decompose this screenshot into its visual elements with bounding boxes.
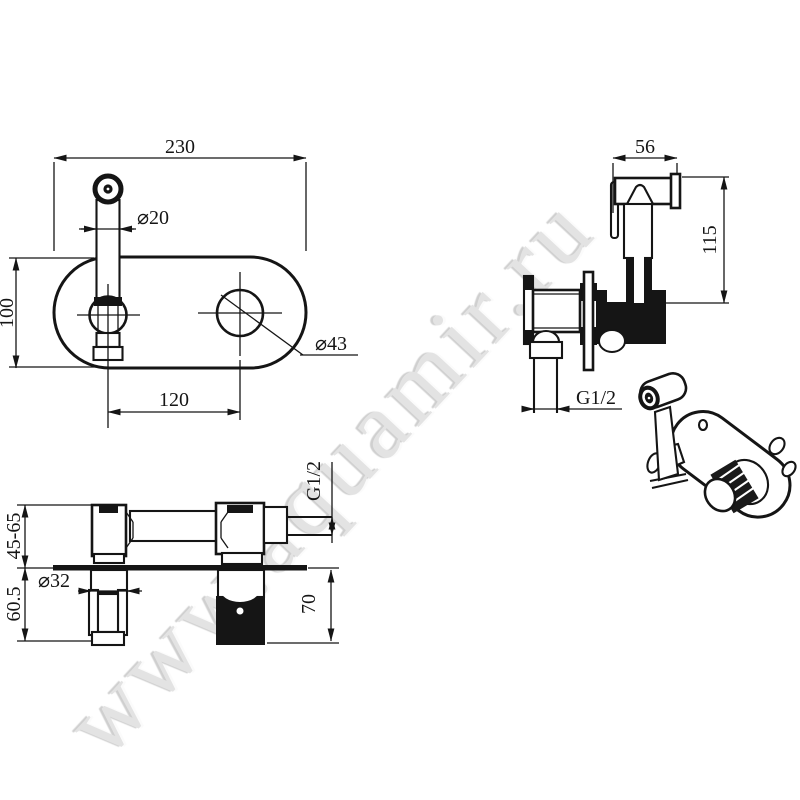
dim-side-width: 56 bbox=[635, 136, 655, 158]
dim-side-thread: G1/2 bbox=[576, 387, 616, 409]
drawing-canvas: www.aquamir.ru bbox=[0, 0, 800, 800]
dim-top-thread: G1/2 bbox=[303, 461, 325, 501]
technical-drawing: 230 ⌀20 100 120 ⌀43 bbox=[0, 0, 800, 800]
view-perspective bbox=[637, 370, 800, 530]
dim-top-body-depth: 70 bbox=[298, 594, 320, 614]
dim-front-center-distance: 120 bbox=[159, 389, 189, 411]
dim-top-pipe-diameter: ⌀32 bbox=[38, 570, 70, 592]
sprayer-head-pin bbox=[107, 188, 110, 191]
escutcheon-plate bbox=[584, 272, 593, 370]
dim-front-height: 100 bbox=[0, 298, 18, 328]
sprayer-handle-side bbox=[624, 204, 652, 258]
dim-top-depth-below: 60.5 bbox=[3, 587, 25, 622]
holder-base-cap bbox=[92, 632, 124, 645]
connecting-tube bbox=[130, 511, 218, 541]
dim-front-width: 230 bbox=[165, 136, 195, 158]
view-front: 230 ⌀20 100 120 ⌀43 bbox=[0, 136, 358, 428]
view-side: 56 115 G1/2 bbox=[524, 136, 729, 413]
dim-side-height: 115 bbox=[699, 225, 721, 254]
outlet-port bbox=[264, 507, 287, 543]
valve-collar bbox=[530, 342, 562, 358]
screw-3d bbox=[699, 420, 707, 430]
valve-housing-section bbox=[216, 596, 265, 645]
holder-base bbox=[91, 570, 127, 592]
sprayer-handle-3d bbox=[655, 407, 678, 480]
holder-collar-top bbox=[94, 554, 124, 563]
bracket-end-plate bbox=[671, 174, 680, 208]
valve-neck bbox=[222, 553, 262, 564]
view-top: 45-65 60.5 ⌀32 70 G1/2 bbox=[3, 461, 339, 645]
valve-body-side bbox=[533, 290, 580, 332]
elbow-dome bbox=[599, 330, 625, 352]
dim-top-depth-range: 45-65 bbox=[3, 513, 25, 560]
dim-front-knob-diameter: ⌀43 bbox=[315, 333, 347, 355]
dim-front-spout-diameter: ⌀20 bbox=[137, 207, 169, 229]
